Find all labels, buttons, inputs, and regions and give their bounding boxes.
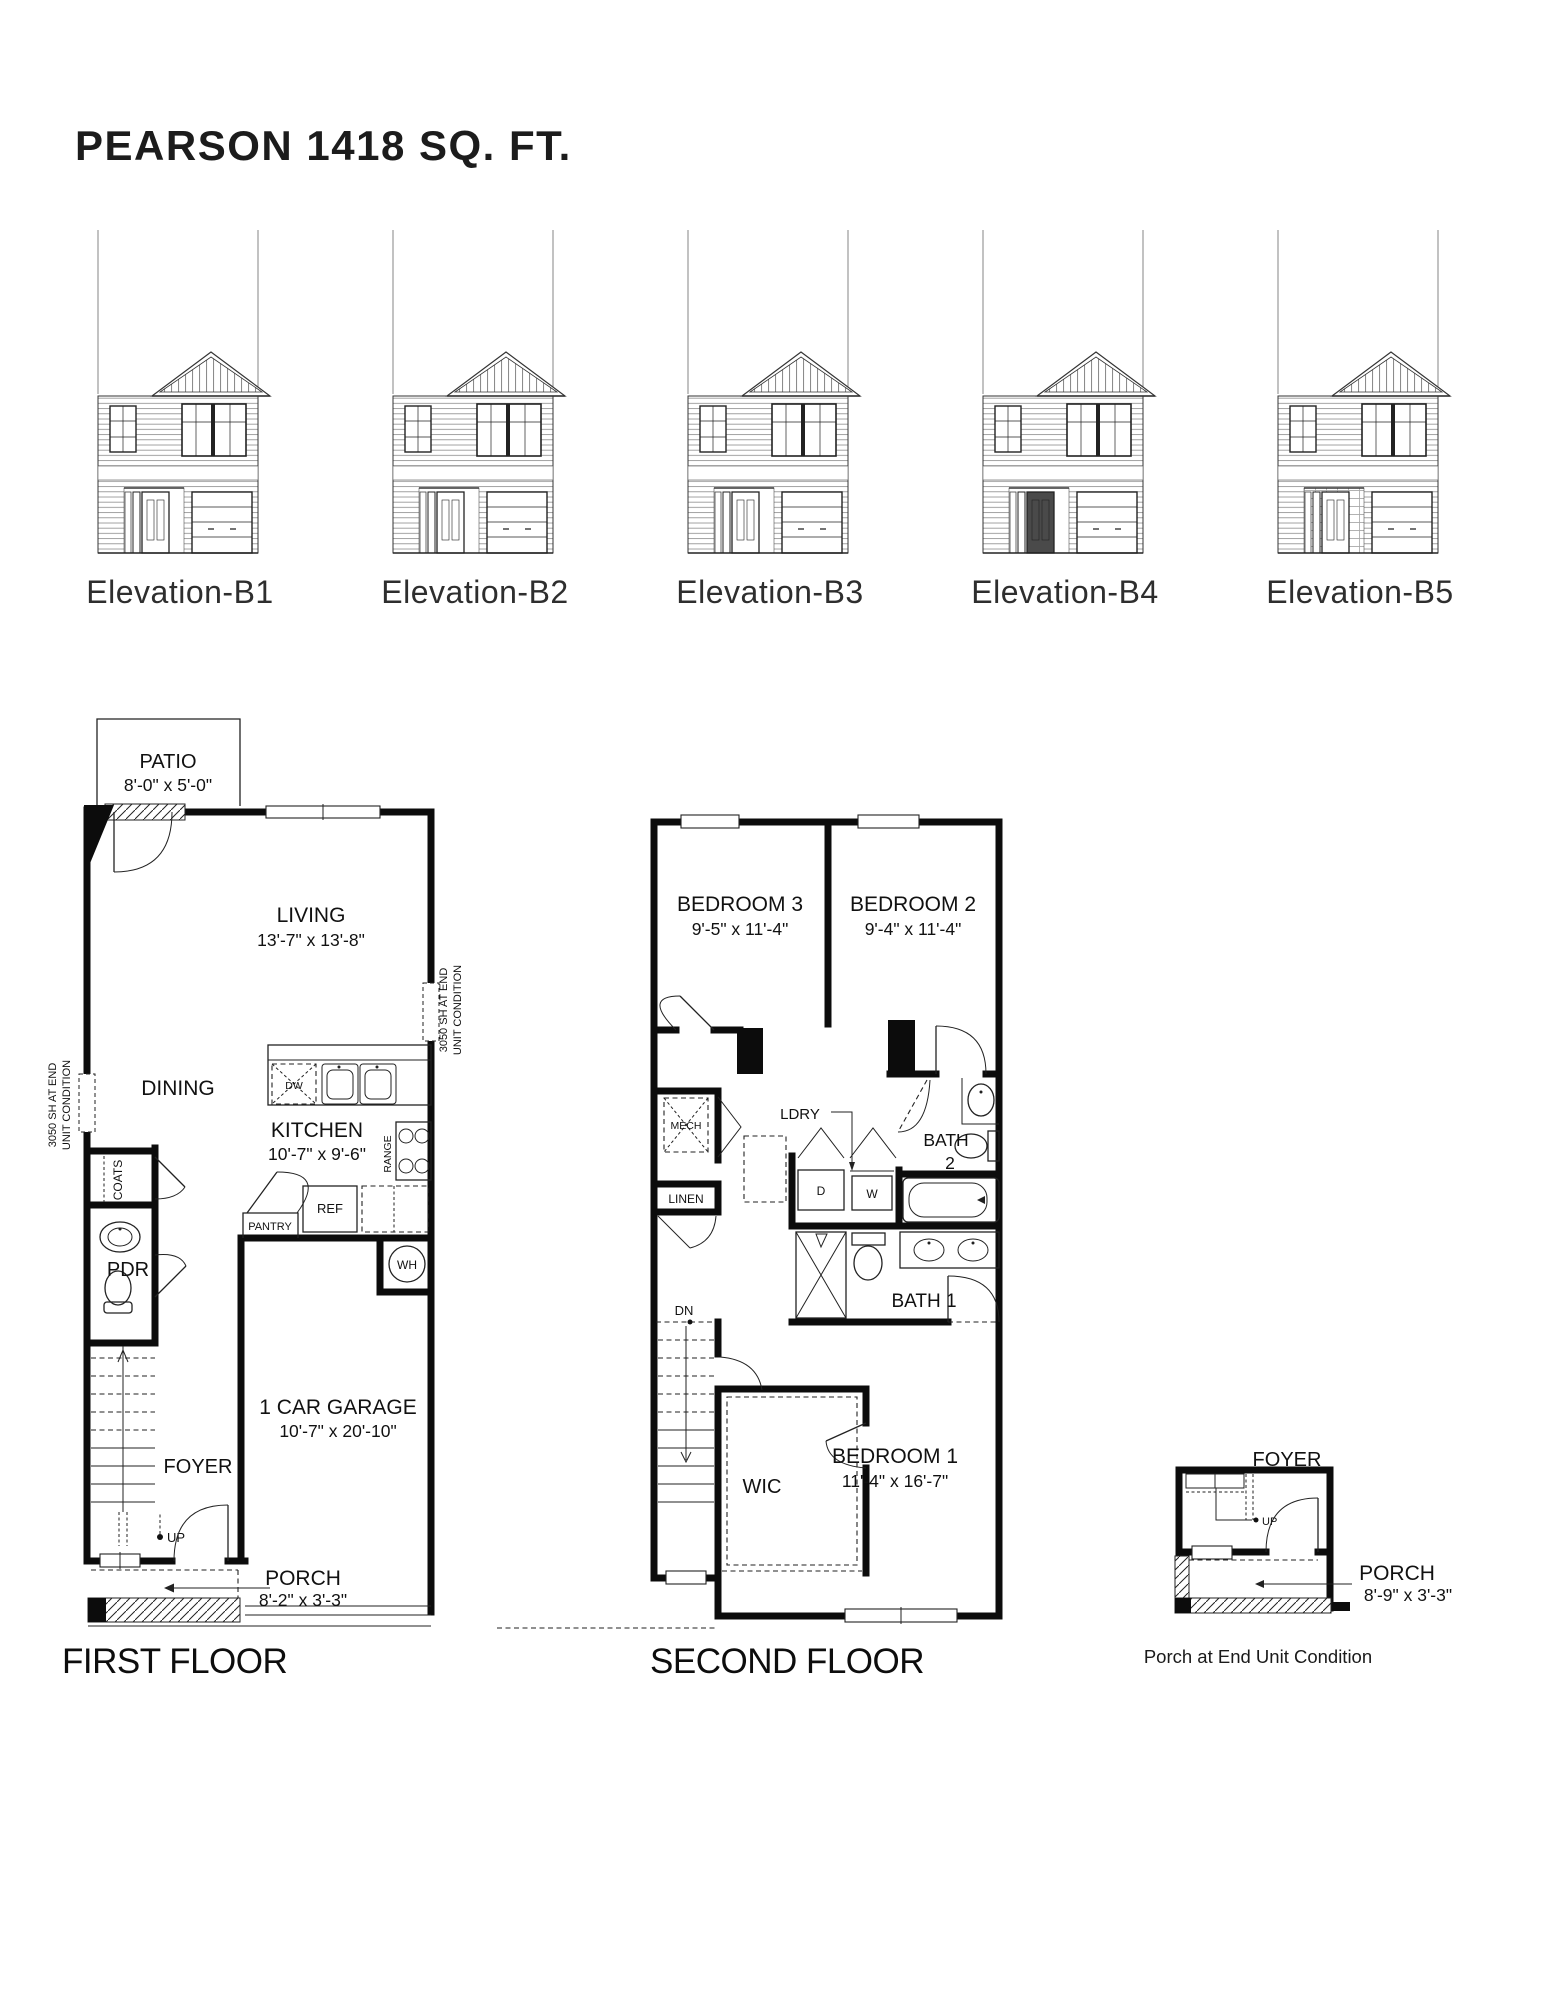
porch-dims: 8'-2" x 3'-3" [259, 1590, 347, 1610]
range-label: RANGE [382, 1135, 394, 1172]
dryer-label: D [817, 1184, 826, 1198]
page-title: PEARSON 1418 SQ. FT. [75, 122, 572, 170]
bath2-label-1: BATH [923, 1130, 968, 1150]
bedroom3-dims: 9'-5" x 11'-4" [692, 919, 789, 939]
dn-label: DN [675, 1303, 694, 1318]
end-unit-note-right-2: UNIT CONDITION [452, 965, 464, 1055]
bedroom2-door [936, 1026, 986, 1074]
pantry: PANTRY [243, 1172, 308, 1238]
bedroom1-door [720, 1357, 762, 1390]
bath1-label: BATH 1 [891, 1291, 956, 1312]
elevation-b1: Elevation-B1 [35, 226, 325, 611]
mech-label: MECH [671, 1120, 702, 1132]
elevation-b3: Elevation-B3 [625, 226, 915, 611]
patio-label: PATIO [139, 751, 196, 773]
linen-label: LINEN [668, 1192, 703, 1206]
porch-label: PORCH [1359, 1562, 1435, 1585]
kitchen-label: KITCHEN [271, 1119, 363, 1142]
wh-label: WH [397, 1258, 417, 1272]
end-unit-note-right-1: 3050 SH AT END [438, 968, 450, 1053]
bedroom3-label: BEDROOM 3 [677, 893, 803, 916]
garage-dims: 10'-7" x 20'-10" [279, 1421, 396, 1441]
elevation-b5-label: Elevation-B5 [1215, 574, 1505, 611]
first-floor-plan: PATIO 8'-0" x 5'-0" COATS [40, 700, 470, 1700]
patio-entry-door [114, 812, 172, 872]
dw-label: DW [285, 1080, 303, 1092]
living-dims: 13'-7" x 13'-8" [257, 930, 365, 950]
pdr-label: PDR [107, 1259, 149, 1281]
end-unit-window-left [79, 1074, 95, 1132]
laundry: D W LDRY [780, 1106, 896, 1210]
powder-room: PDR [100, 1222, 186, 1313]
chase [888, 1020, 915, 1072]
porch-detail-plan: UP FOYER PORCH 8'-9" x 3'-3" [1130, 1420, 1540, 1680]
foyer-window [1192, 1546, 1232, 1559]
ref-label: REF [317, 1201, 343, 1216]
washer-label: W [866, 1187, 878, 1201]
elevation-b1-label: Elevation-B1 [35, 574, 325, 611]
foyer-stairs: UP [1186, 1474, 1277, 1528]
patio: PATIO 8'-0" x 5'-0" [97, 719, 240, 806]
dining-label: DINING [141, 1077, 215, 1100]
chase [737, 1028, 763, 1074]
stairs-down: DN [656, 1303, 714, 1502]
pantry-label: PANTRY [248, 1221, 292, 1233]
stairs-up: UP [91, 1346, 185, 1546]
bath2-label-2: 2 [945, 1153, 955, 1173]
elevation-b5: Elevation-B5 [1215, 226, 1505, 611]
linen-closet: LINEN [658, 1192, 716, 1248]
elevation-b2-label: Elevation-B2 [330, 574, 620, 611]
walls [1179, 1470, 1330, 1608]
walls [654, 822, 999, 1616]
porch-label: PORCH [265, 1567, 341, 1590]
coats-closet: COATS [104, 1156, 185, 1202]
coats-label: COATS [111, 1160, 125, 1200]
patio-dims: 8'-0" x 5'-0" [124, 775, 212, 795]
elevation-b4: Elevation-B4 [920, 226, 1210, 611]
bedroom2-label: BEDROOM 2 [850, 893, 976, 916]
end-unit-note-left-2: UNIT CONDITION [61, 1060, 73, 1150]
foyer-label: FOYER [164, 1456, 233, 1478]
bath2: BATH 2 [898, 1078, 999, 1222]
end-unit-window-right [423, 983, 439, 1041]
kitchen-dims: 10'-7" x 9'-6" [268, 1144, 366, 1164]
elevation-b3-label: Elevation-B3 [625, 574, 915, 611]
garage-label: 1 CAR GARAGE [259, 1396, 417, 1419]
second-floor-caption: SECOND FLOOR [650, 1642, 924, 1682]
porch-structure [1175, 1556, 1352, 1613]
elevation-b3-drawing [670, 226, 870, 561]
bath1: BATH 1 [796, 1232, 999, 1322]
wic-label: WIC [743, 1476, 782, 1498]
floorplan-sheet: PEARSON 1418 SQ. FT. Elevation-B1 Elevat… [0, 0, 1545, 2000]
bedroom1-dims: 11'-4" x 16'-7" [842, 1471, 948, 1491]
porch-detail-caption: Porch at End Unit Condition [1133, 1646, 1383, 1668]
patio-door-hatch [105, 804, 185, 820]
elevation-b5-drawing [1260, 226, 1460, 561]
first-floor-caption: FIRST FLOOR [62, 1642, 287, 1682]
foyer-label: FOYER [1253, 1449, 1322, 1471]
elevation-b1-drawing [80, 226, 280, 561]
ldry-label: LDRY [780, 1106, 820, 1123]
porch-dims: 8'-9" x 3'-3" [1364, 1585, 1452, 1605]
end-unit-note-left-1: 3050 SH AT END [47, 1063, 59, 1148]
elevation-b4-drawing [965, 226, 1165, 561]
windows [79, 804, 439, 1569]
elevation-b2: Elevation-B2 [330, 226, 620, 611]
bedroom1-label: BEDROOM 1 [832, 1445, 958, 1468]
second-floor-plan: MECH LINEN D W LDRY [480, 780, 1010, 1700]
elevation-b2-drawing [375, 226, 575, 561]
bedroom3-door [660, 996, 714, 1030]
living-label: LIVING [277, 904, 346, 927]
bedroom2-dims: 9'-4" x 11'-4" [865, 919, 962, 939]
elevation-b4-label: Elevation-B4 [920, 574, 1210, 611]
